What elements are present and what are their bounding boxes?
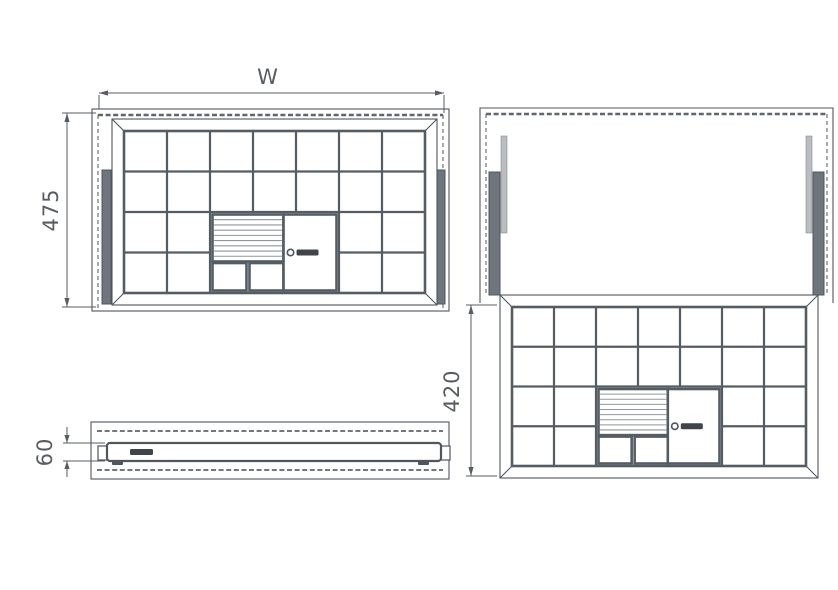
arrow-down-icon <box>64 435 69 443</box>
plan-view-open: 420 <box>440 108 833 478</box>
dimension-depth: 475 <box>39 113 96 307</box>
slide-rod-right <box>806 136 812 233</box>
arrow-down-icon <box>468 467 473 476</box>
slide-rod-left <box>501 136 507 233</box>
technical-drawing-canvas: W 475 60 <box>0 0 838 590</box>
brand-logo <box>297 250 319 256</box>
dimension-front-height: 60 <box>33 427 105 477</box>
arrow-down-icon <box>64 298 69 307</box>
dimension-tray-depth-label: 420 <box>440 369 464 412</box>
cabinet-outline <box>480 108 833 303</box>
front-view: 60 <box>33 422 450 479</box>
small-compartment <box>635 437 668 464</box>
arrow-up-icon <box>468 305 473 314</box>
tray-closed <box>112 119 437 305</box>
arrow-right-icon <box>435 90 444 95</box>
arrow-up-icon <box>64 113 69 122</box>
dimension-depth-label: 475 <box>39 188 63 231</box>
arrow-up-icon <box>64 461 69 469</box>
slide-rail-left <box>102 170 111 304</box>
slide-rail-right <box>813 172 824 295</box>
dimension-width: W <box>99 65 444 113</box>
rail-end-cap-left <box>98 446 107 460</box>
brand-logo <box>681 423 703 429</box>
drawing-svg: W 475 60 <box>0 0 838 590</box>
tray-foot-right <box>418 461 429 465</box>
small-compartment <box>213 263 247 290</box>
slide-rail-left <box>489 172 500 295</box>
brand-logo <box>130 449 153 455</box>
small-compartment <box>249 263 283 290</box>
arrow-left-icon <box>99 90 108 95</box>
dimension-width-label: W <box>257 65 279 89</box>
rail-end-cap-right <box>441 446 450 460</box>
tray-foot-left <box>112 461 123 465</box>
dimension-front-height-label: 60 <box>33 438 57 467</box>
striped-compartment <box>599 389 668 435</box>
striped-compartment <box>213 215 284 262</box>
tray-extended <box>500 295 818 478</box>
small-compartment <box>599 437 632 464</box>
plan-view-closed: W 475 <box>39 65 449 311</box>
tray-front-panel <box>107 443 441 461</box>
